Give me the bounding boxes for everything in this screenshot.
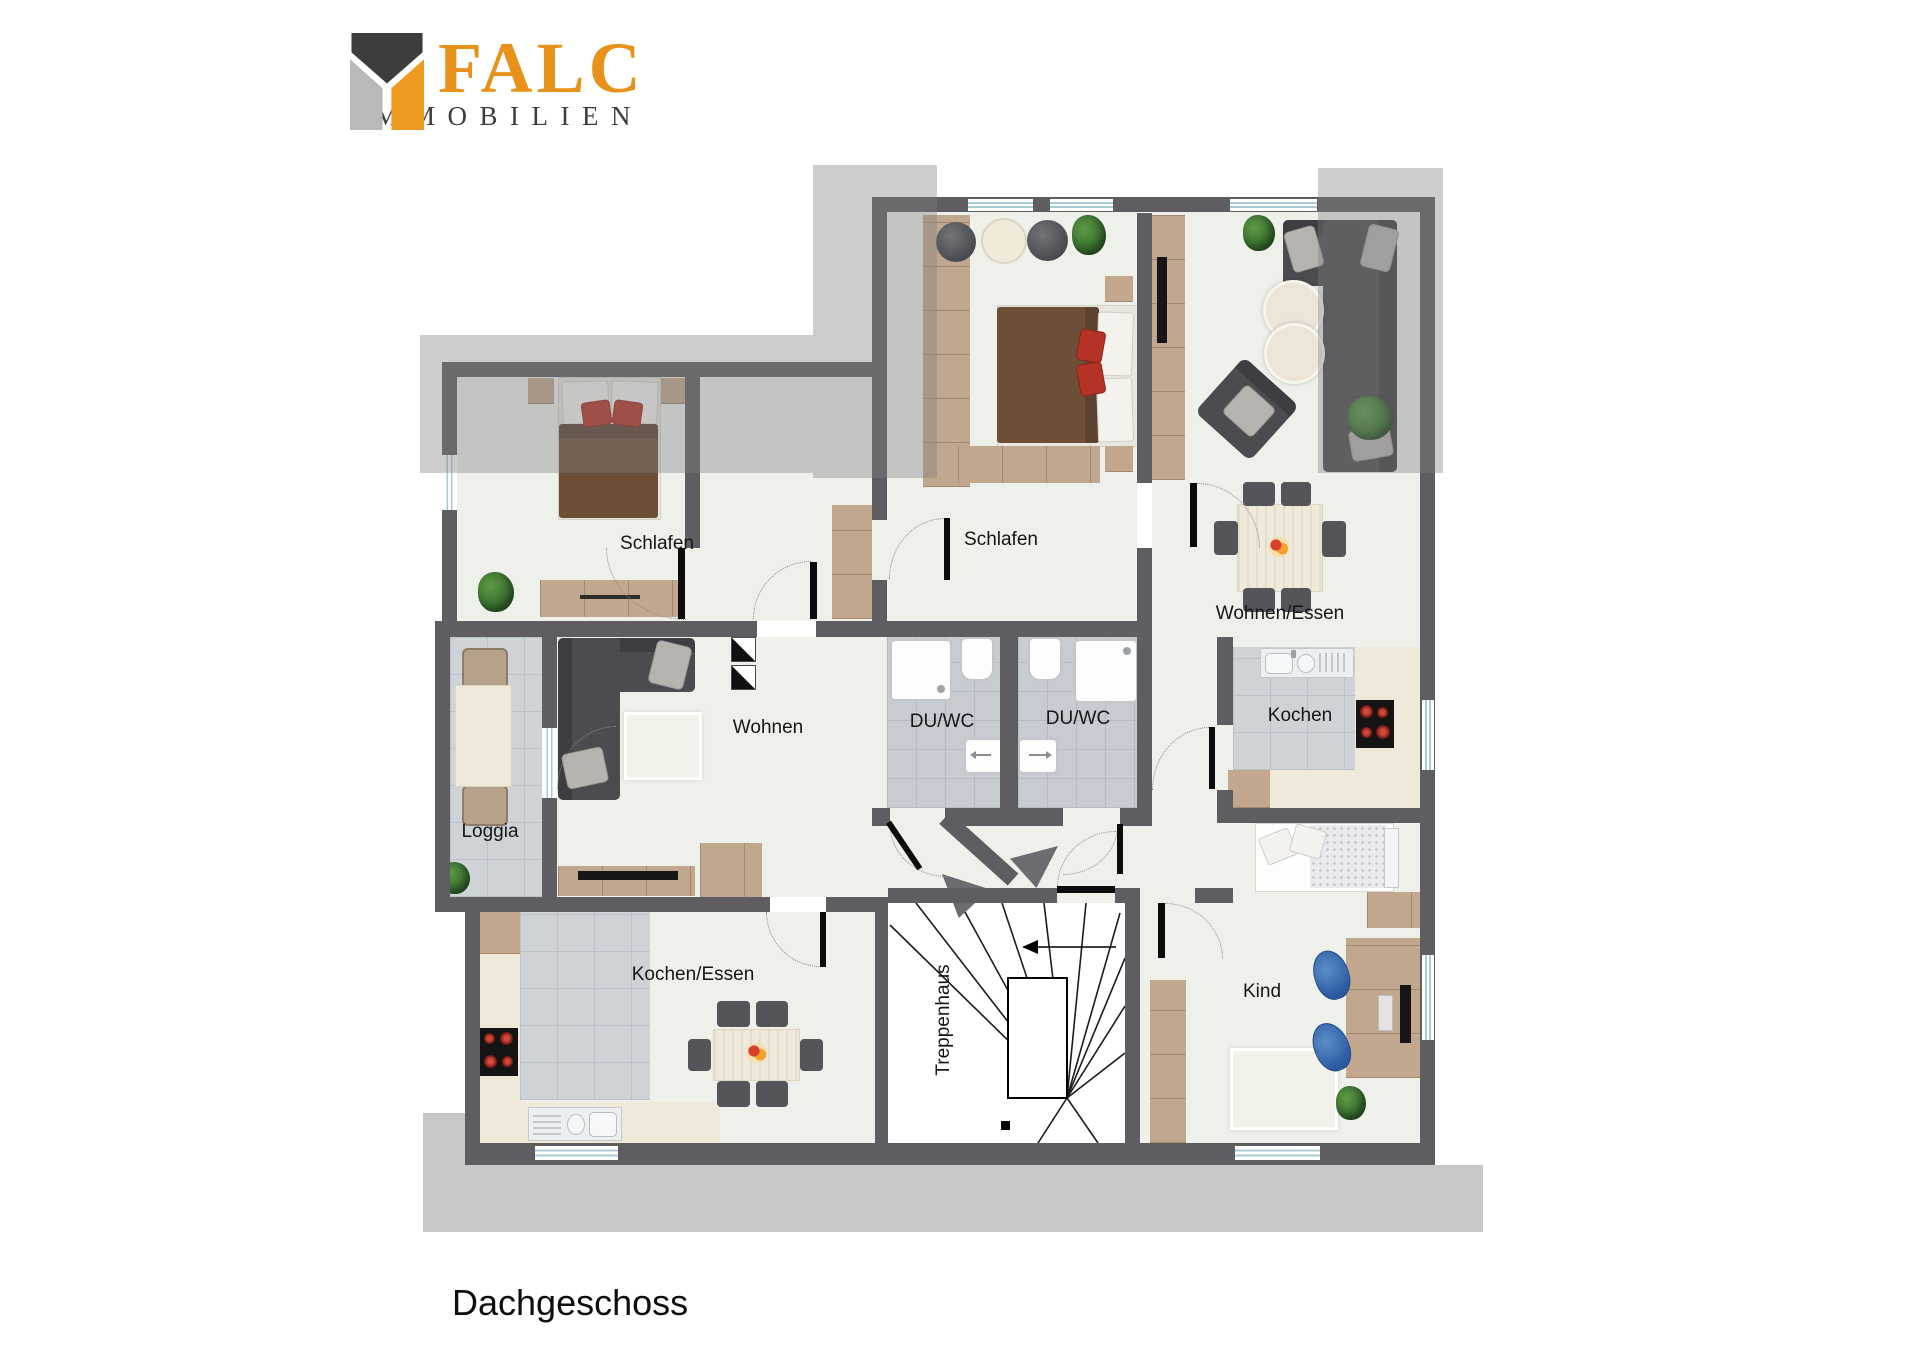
hall-sideboard: [700, 843, 762, 897]
wall-segment: [875, 897, 888, 1143]
nightstand: [1105, 446, 1133, 472]
toilet: [960, 637, 994, 681]
kitchen-sink: [1260, 648, 1354, 678]
shower: [1074, 639, 1138, 703]
room-label-loggia: Loggia: [461, 821, 518, 843]
bed-bench: [958, 446, 1100, 483]
room-label-kochen-essen: Kochen/Essen: [632, 964, 755, 986]
wall-segment: [442, 510, 457, 621]
wall-segment: [435, 621, 450, 912]
wall-segment: [1217, 637, 1233, 725]
room-label-duwc-left: DU/WC: [910, 711, 974, 733]
kitchen-tiles-left: [520, 912, 650, 1100]
wall-segment: [826, 897, 875, 912]
dining-chair: [800, 1039, 823, 1071]
staircase: [888, 903, 1125, 1143]
roof-slope-overlay: [813, 165, 937, 478]
window: [968, 199, 1033, 211]
faucet-icon: [1291, 650, 1296, 658]
floor-title: Dachgeschoss: [452, 1282, 688, 1324]
wall-segment: [816, 621, 1137, 637]
round-side-table: [1264, 323, 1325, 384]
bed-headboard: [1384, 828, 1399, 888]
room-label-kochen: Kochen: [1268, 705, 1332, 727]
room-label-wohnen: Wohnen: [733, 717, 803, 739]
plant-icon: [1243, 215, 1275, 251]
window: [1235, 1146, 1320, 1160]
door-leaf: [1117, 824, 1123, 874]
kitchen-sink: [528, 1107, 622, 1141]
plant-icon: [1336, 1086, 1366, 1120]
fruit-bowl-icon: [1269, 537, 1289, 557]
door-leaf: [820, 912, 826, 967]
wall-segment: [435, 897, 770, 912]
plant-icon: [1072, 215, 1106, 255]
accent-pillow: [1075, 328, 1106, 364]
dining-chair: [1281, 482, 1311, 506]
wall-segment: [1137, 213, 1152, 483]
wall-segment: [1000, 637, 1018, 810]
room-label-kind: Kind: [1243, 981, 1281, 1003]
wall-segment: [1137, 548, 1152, 637]
monitor-icon: [1400, 985, 1411, 1043]
door-leaf: [678, 548, 685, 619]
sink-basin: [589, 1112, 617, 1137]
wardrobe: [1150, 980, 1186, 1143]
wall-segment: [1217, 790, 1233, 823]
stove-hob: [1356, 700, 1394, 748]
wall-segment: [1137, 637, 1152, 810]
dining-chair: [717, 1001, 750, 1027]
faucet-arrow-icon: [970, 751, 976, 759]
wall-segment: [435, 621, 757, 637]
washbasin: [964, 738, 1004, 774]
floor-plan-page: FALC IMMOBILIEN: [0, 0, 1920, 1357]
roof-slope-overlay: [1318, 168, 1443, 473]
shower-head-icon: [937, 685, 945, 693]
room-label-wohnen-essen: Wohnen/Essen: [1216, 603, 1345, 625]
wall-segment: [1195, 888, 1233, 903]
shower: [890, 639, 952, 701]
plant-icon: [478, 572, 514, 612]
window: [1422, 700, 1434, 770]
site-apron: [423, 1165, 1483, 1232]
wall-segment: [465, 912, 480, 1165]
dining-chair: [756, 1081, 788, 1107]
faucet-arrow-icon: [1029, 754, 1047, 756]
drainer-icon: [533, 1113, 561, 1135]
wall-segment: [542, 621, 557, 728]
loggia-chair: [462, 648, 508, 689]
balcony-door: [543, 728, 556, 798]
stove-hob: [480, 1028, 518, 1076]
wall-segment: [1115, 888, 1140, 903]
door-leaf: [1209, 727, 1215, 789]
door-leaf: [1158, 903, 1165, 958]
rug: [624, 712, 702, 780]
toilet: [1028, 637, 1062, 681]
door-leaf: [1190, 483, 1197, 547]
door-leaf: [1057, 886, 1115, 893]
dining-chair: [688, 1039, 711, 1071]
tv-icon: [578, 871, 678, 880]
window: [535, 1146, 618, 1160]
door-leaf: [810, 562, 817, 619]
wall-segment: [1233, 808, 1420, 823]
side-shelf: [1367, 892, 1420, 928]
dining-chair: [1243, 482, 1275, 506]
dining-chair: [756, 1001, 788, 1027]
washbasin: [1018, 738, 1058, 774]
window: [1230, 199, 1317, 211]
wall-segment: [1125, 903, 1140, 1143]
wall-segment: [542, 798, 557, 912]
roof-slope-overlay: [420, 335, 813, 473]
shower-head-icon: [1123, 647, 1131, 655]
ceiling-lamp-icon: [981, 218, 1027, 264]
kitchen-cabinet: [480, 912, 520, 954]
room-label-treppenhaus: Treppenhaus: [933, 964, 955, 1075]
sink-basin: [1265, 653, 1293, 674]
window: [1422, 955, 1434, 1040]
tall-cabinet: [832, 505, 872, 619]
sink-basin: [1297, 654, 1315, 673]
fruit-bowl-icon: [747, 1043, 767, 1063]
room-label-schlafen-top: Schlafen: [964, 529, 1038, 551]
accent-pillow: [1075, 361, 1106, 397]
wall-segment: [1120, 808, 1152, 826]
ceiling-lamp-icon: [1027, 220, 1068, 261]
dining-chair: [717, 1081, 750, 1107]
sink-basin: [567, 1114, 585, 1135]
logo-brand-text: FALC: [438, 32, 645, 104]
loggia-chair: [462, 785, 508, 826]
site-apron: [423, 1113, 468, 1168]
wall-segment: [888, 888, 1057, 903]
shelf-unit: [1152, 215, 1185, 480]
faucet-arrow-icon: [1046, 751, 1052, 759]
door-leaf: [944, 518, 950, 580]
keyboard-icon: [1378, 995, 1393, 1031]
room-label-duwc-right: DU/WC: [1046, 708, 1110, 730]
tv-icon: [1157, 257, 1167, 343]
kitchen-cabinet: [1228, 770, 1270, 808]
vent-shaft-icon: [731, 665, 756, 690]
vent-shaft-icon: [731, 637, 756, 662]
nightstand: [1105, 276, 1133, 302]
falc-logo: [350, 33, 424, 130]
drainer-icon: [1319, 653, 1349, 672]
loggia-table: [455, 685, 512, 787]
window: [1050, 199, 1113, 211]
kitchen-counter: [1270, 770, 1420, 808]
ceiling-lamp-icon: [936, 222, 976, 262]
dining-chair: [1322, 521, 1346, 557]
